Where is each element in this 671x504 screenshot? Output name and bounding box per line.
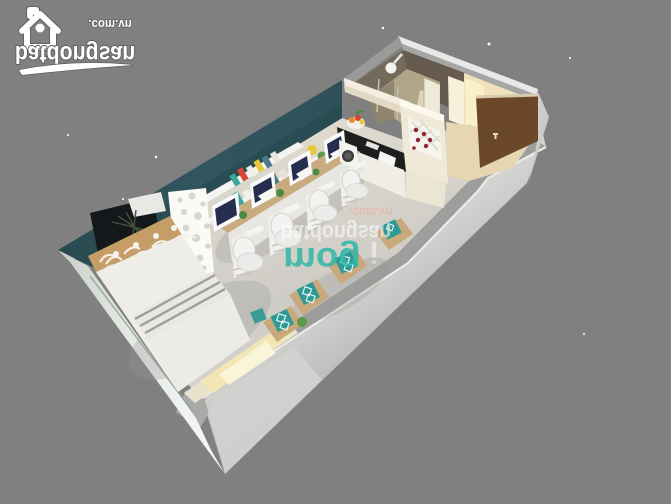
svg-text:.com.vn: .com.vn (349, 205, 392, 220)
svg-text:mog: mog (283, 240, 361, 279)
svg-text:i: i (370, 235, 378, 268)
svg-text:.com.vn: .com.vn (88, 17, 131, 32)
